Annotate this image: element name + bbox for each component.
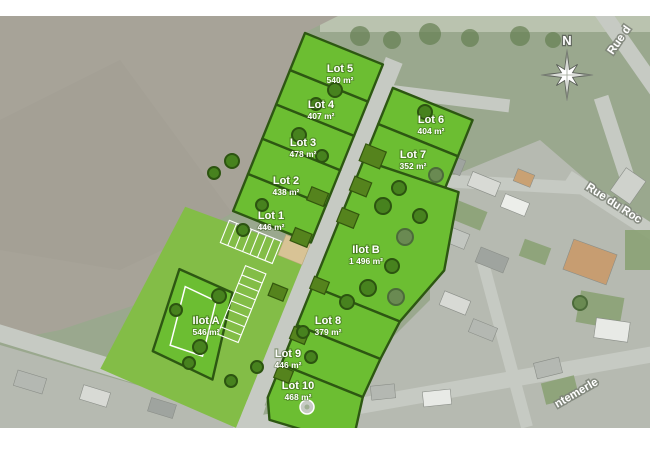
lot-8-label: Lot 8 [315, 315, 341, 327]
lot-7-label: Lot 7 [400, 149, 426, 161]
ilot-b-label: Ilot B [352, 244, 380, 256]
lot-1-label: Lot 1 [258, 210, 284, 222]
lot-10-area: 468 m² [285, 392, 312, 402]
compass-north-label: N [562, 33, 571, 48]
lot-8-area: 379 m² [315, 327, 342, 337]
lot-9-area: 446 m² [275, 360, 302, 370]
lot-7-area: 352 m² [400, 161, 427, 171]
lot-2-label: Lot 2 [273, 175, 299, 187]
masterplan-svg: Lot 5 540 m² Lot 4 407 m² Lot 3 478 m² L… [0, 0, 650, 453]
lot-6-area: 404 m² [418, 126, 445, 136]
lot-4-label: Lot 4 [308, 99, 335, 111]
aerial-masterplan-image: Lot 5 540 m² Lot 4 407 m² Lot 3 478 m² L… [0, 0, 650, 453]
lot-3-label: Lot 3 [290, 137, 316, 149]
lot-10-label: Lot 10 [282, 380, 314, 392]
ilot-b-area: 1 496 m² [349, 256, 383, 266]
lot-4-area: 407 m² [308, 111, 335, 121]
lot-6-label: Lot 6 [418, 114, 444, 126]
lot-5-label: Lot 5 [327, 63, 353, 75]
roundabout-center [305, 405, 310, 410]
lot-1-area: 446 m² [258, 222, 285, 232]
lot-3-area: 478 m² [290, 149, 317, 159]
ilot-a-label: Ilot A [192, 315, 219, 327]
lot-5-area: 540 m² [327, 75, 354, 85]
lot-2-area: 438 m² [273, 187, 300, 197]
ilot-a-area: 546 m² [193, 327, 220, 337]
lot-9-label: Lot 9 [275, 348, 301, 360]
